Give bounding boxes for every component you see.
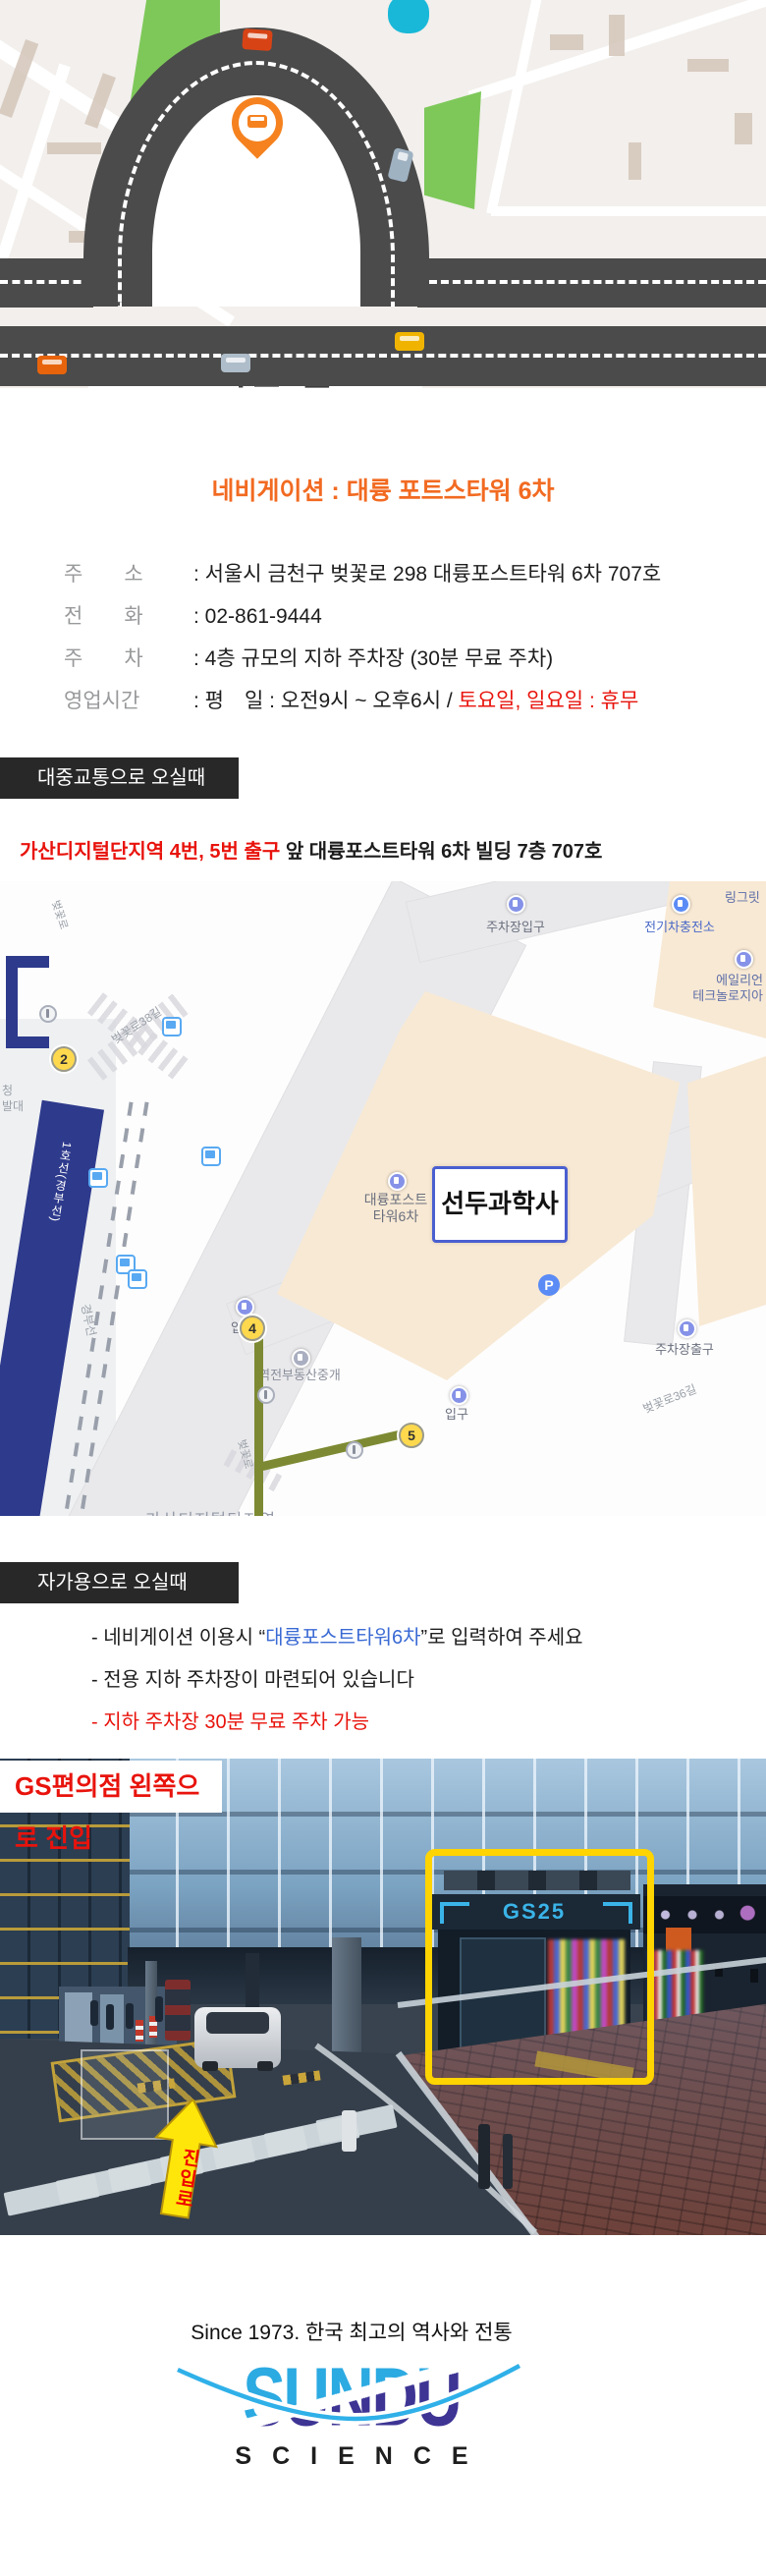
exit-2-marker: 2 — [51, 1046, 77, 1072]
street-photo: GS25 — [0, 1759, 766, 2235]
alien-poi-icon — [735, 950, 753, 969]
walk-path-vertical — [254, 1325, 263, 1516]
map-building-e — [687, 1056, 766, 1326]
map-screenshot: 1호선(경부선) 경부선 벚꽃로 벚꽃로38길 벚꽃로36길 벚꽃로 청 발대 … — [0, 881, 766, 1516]
street-label-36: 벚꽃로36길 — [640, 1380, 699, 1417]
car-icon — [37, 356, 67, 374]
exit-4-marker: 4 — [240, 1316, 265, 1341]
bollard — [478, 2124, 490, 2189]
map-fragment: 발대 — [2, 1097, 24, 1114]
bus-stop-icon — [88, 1168, 108, 1188]
car-glyph-icon — [247, 115, 267, 128]
gs-entry-label: GS편의점 왼쪽으로 진입 — [0, 1761, 222, 1813]
parking-p-icon: P — [538, 1274, 560, 1296]
parking-label: 주 차 — [64, 638, 193, 680]
walker-icon — [257, 1386, 275, 1404]
subway-line-label: 1호선(경부선) — [47, 1141, 77, 1223]
address-label: 주 소 — [64, 553, 193, 595]
transit-section-header: 대중교통으로 오실때 — [0, 757, 239, 799]
entrance-right-poi-icon — [450, 1386, 468, 1405]
car-note-1-pre: - 네비게이션 이용시 “ — [91, 1627, 265, 1649]
hours-row: 영업시간: 평 일 : 오전9시 ~ 오후6시 / 토요일, 일요일 : 휴무 — [64, 680, 751, 722]
car-note-1-keyword: 대륭포스트타워6차 — [265, 1627, 420, 1649]
car-notes: - 네비게이션 이용시 “대륭포스트타워6차”로 입력하여 주세요 - 전용 지… — [91, 1617, 583, 1744]
info-list: 주 소: 서울시 금천구 벚꽃로 298 대륭포스트타워 6차 707호 전 화… — [64, 553, 751, 722]
address-value: : 서울시 금천구 벚꽃로 298 대륭포스트타워 6차 707호 — [193, 563, 661, 586]
hours-label: 영업시간 — [64, 680, 193, 722]
footer: Since 1973. 한국 최고의 역사와 전통 SUNDU SCIENCE — [0, 2317, 703, 2346]
address-row: 주 소: 서울시 금천구 벚꽃로 298 대륭포스트타워 6차 707호 — [64, 553, 751, 595]
road-right — [417, 258, 766, 308]
map-block — [629, 142, 641, 180]
bus-stop-icon — [162, 1017, 182, 1036]
parking-value: : 4층 규모의 지하 주차장 (30분 무료 주차) — [193, 647, 553, 670]
car-note-3: - 지하 주차장 30분 무료 주차 가능 — [91, 1702, 583, 1744]
parking-entrance-poi-icon — [507, 895, 525, 914]
hero-illustration: 오시는 길 — [0, 0, 766, 388]
parking-exit-label: 주차장출구 — [630, 1339, 739, 1358]
parking-exit-poi-icon — [678, 1319, 696, 1338]
entrance-left-poi-icon — [236, 1298, 254, 1316]
company-highlight-box: 선두과학사 — [432, 1166, 568, 1243]
transit-note: 가산디지털단지역 4번, 5번 출구 앞 대륭포스트타워 6차 빌딩 7층 70… — [20, 835, 602, 864]
walker-icon — [346, 1441, 363, 1459]
map-block — [687, 59, 729, 72]
park-area — [424, 91, 481, 209]
gs25-highlight-box — [425, 1849, 654, 2085]
bus-stop-icon — [128, 1269, 147, 1289]
entrance-right-label: 입구 — [432, 1404, 481, 1423]
road-bottom — [0, 326, 766, 386]
bollard — [503, 2134, 513, 2189]
phone-row: 전 화: 02-861-9444 — [64, 595, 751, 638]
pedestrian — [126, 2003, 134, 2029]
car-icon — [221, 354, 250, 372]
bus-stop-icon — [201, 1147, 221, 1166]
alien-label-line2: 테크놀로지아 — [650, 985, 763, 1004]
parking-entrance-label: 주차장입구 — [462, 917, 570, 935]
location-pin-icon — [232, 97, 283, 168]
building-poi-icon — [388, 1172, 407, 1191]
street-line — [491, 206, 766, 216]
ring-label: 링그릿 — [725, 887, 766, 906]
pedestrian — [90, 2000, 98, 2026]
ev-charging-poi-icon — [672, 895, 690, 914]
directions-page: 오시는 길 네비게이션 : 대륭 포트스타워 6차 주 소: 서울시 금천구 벚… — [0, 0, 766, 2576]
map-block — [47, 142, 101, 154]
map-fragment: 청 — [2, 1082, 13, 1098]
company-logo-sub: SCIENCE — [0, 2442, 703, 2471]
hours-value: : 평 일 : 오전9시 ~ 오후6시 / — [193, 690, 459, 712]
pedestrian — [155, 1996, 163, 2022]
phone-label: 전 화 — [64, 595, 193, 638]
car-icon — [242, 28, 272, 51]
car-note-1-post: ”로 입력하여 주세요 — [421, 1627, 583, 1649]
hours-closed-value: 토요일, 일요일 : 휴무 — [459, 690, 639, 712]
map-block — [609, 15, 625, 56]
overpass-shape — [6, 956, 49, 1048]
ticket-kiosk — [165, 1980, 191, 2041]
parking-row: 주 차: 4층 규모의 지하 주차장 (30분 무료 주차) — [64, 638, 751, 680]
navigation-title: 네비게이션 : 대륭 포트스타워 6차 — [0, 472, 766, 507]
transit-note-highlight: 가산디지털단지역 4번, 5번 출구 — [20, 841, 280, 863]
silver-car — [194, 2007, 281, 2068]
walker-icon — [39, 1005, 57, 1023]
map-block — [550, 34, 583, 50]
traffic-cone-icon — [136, 2020, 143, 2042]
street-label-cherry-top: 벚꽃로 — [48, 898, 73, 931]
phone-value: : 02-861-9444 — [193, 605, 322, 628]
pedestrian — [106, 2004, 114, 2030]
transit-note-rest: 앞 대륭포스트타워 6차 빌딩 7층 707호 — [280, 841, 602, 863]
map-block — [735, 113, 752, 144]
exit-5-marker: 5 — [399, 1423, 424, 1448]
walk-path-horizontal — [257, 1429, 405, 1472]
car-note-2: - 전용 지하 주차장이 마련되어 있습니다 — [91, 1659, 583, 1702]
road-left — [0, 258, 93, 308]
footer-slogan: Since 1973. 한국 최고의 역사와 전통 — [0, 2317, 703, 2346]
street-line — [486, 0, 545, 214]
pond — [388, 0, 429, 33]
car-icon — [395, 332, 424, 351]
car-note-1: - 네비게이션 이용시 “대륭포스트타워6차”로 입력하여 주세요 — [91, 1617, 583, 1659]
car-section-header: 자가용으로 오실때 — [0, 1562, 239, 1603]
ev-charging-label: 전기차충전소 — [619, 917, 740, 935]
bollard — [342, 2110, 356, 2152]
